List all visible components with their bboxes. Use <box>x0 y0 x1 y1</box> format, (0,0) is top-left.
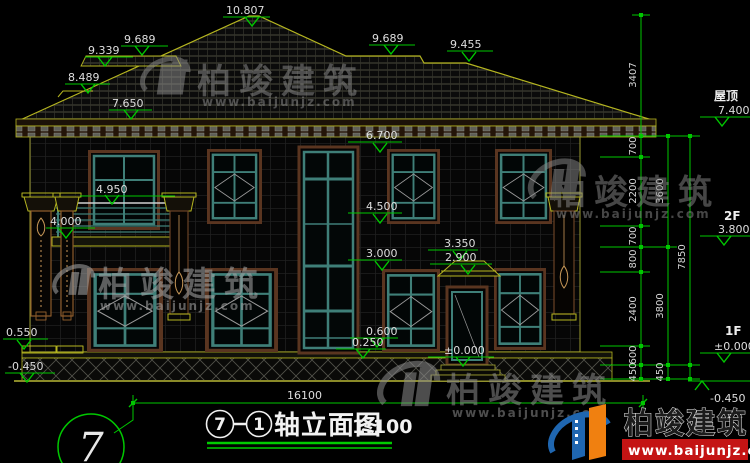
level-roof-right-panel: 屋顶 7.400 <box>700 89 750 126</box>
title-axis-end: 1 <box>253 415 265 435</box>
roof-level: 7.400 <box>718 104 750 117</box>
stair-window <box>299 147 358 353</box>
floor1-level: ±0.000 <box>714 340 750 353</box>
brand-badge: 柏竣建筑 www.baijunjz.com <box>551 404 750 460</box>
dim-700b: 700 <box>628 226 639 245</box>
brand-badge-name: 柏竣建筑 <box>624 406 748 440</box>
f1-window-d <box>495 270 544 349</box>
dim-7850: 7850 <box>677 244 688 269</box>
roof-label: 屋顶 <box>714 89 738 103</box>
level-text: 2.900 <box>445 251 477 264</box>
overall-width-dim: 16100 <box>287 389 322 402</box>
level-text: 6.700 <box>366 129 398 142</box>
dim-600: 600 <box>628 345 639 364</box>
cad-elevation-drawing: 10.807 9.689 9.339 8.489 7.650 9.689 9.4… <box>0 0 750 463</box>
level-ground-panel: -0.450 <box>688 381 750 405</box>
level-text: 7.650 <box>112 97 144 110</box>
level-roof-left-upper: 9.689 <box>121 33 168 55</box>
dim-450a: 450 <box>628 362 639 381</box>
level-text-ridge: 10.807 <box>226 4 265 17</box>
level-text: 4.950 <box>96 183 128 196</box>
title-scale: 1:100 <box>352 416 412 438</box>
ground-level: -0.450 <box>710 392 745 405</box>
watermark-brand: 柏竣建筑 <box>446 371 614 411</box>
watermark-url: www.baijunjz.com <box>202 95 357 109</box>
level-roof-right-upper: 9.689 <box>369 32 415 54</box>
watermark-right: 柏竣建筑 www.baijunjz.com <box>531 161 720 221</box>
dim-3800: 3800 <box>655 293 666 318</box>
level-text: 3.000 <box>366 247 398 260</box>
level-text: 9.689 <box>372 32 404 45</box>
level-text: 0.250 <box>352 336 384 349</box>
floor1-label: 1F <box>725 324 742 338</box>
title-axis-start: 7 <box>214 415 226 435</box>
level-text: 9.689 <box>124 33 156 46</box>
f2-window-d <box>497 150 551 222</box>
level-text: -0.450 <box>8 360 43 373</box>
level-text: 4.500 <box>366 200 398 213</box>
level-1f-panel: 1F ±0.000 <box>700 324 750 362</box>
level-roof-right-step: 9.455 <box>447 38 493 61</box>
drawing-canvas: 10.807 9.689 9.339 8.489 7.650 9.689 9.4… <box>0 0 750 463</box>
door-step-1 <box>441 365 495 370</box>
dim-450b: 450 <box>655 362 666 381</box>
dim-700a: 700 <box>628 136 639 155</box>
level-text: ±0.000 <box>444 344 485 357</box>
floor2-level: 3.800 <box>718 223 750 236</box>
level-text: 9.455 <box>450 38 482 51</box>
axis-bubble-number: 7 <box>78 425 104 463</box>
drawing-title: 7 1 轴立面图 1:100 <box>207 410 413 448</box>
level-text: 0.550 <box>6 326 38 339</box>
watermark-url: www.baijunjz.com <box>556 207 711 221</box>
axis-leader <box>114 403 133 433</box>
eave-cornice <box>16 119 656 137</box>
level-text: 4.000 <box>50 215 82 228</box>
dim-3407: 3407 <box>628 62 639 87</box>
brand-badge-url: www.baijunjz.com <box>628 443 750 459</box>
f2-window-b <box>208 150 260 222</box>
level-text: 9.339 <box>88 44 120 57</box>
level-text: 8.489 <box>68 71 100 84</box>
brand-logo-bar-orange <box>589 404 606 460</box>
dim-2400: 2400 <box>628 296 639 321</box>
watermark-url: www.baijunjz.com <box>100 299 255 313</box>
dim-800: 800 <box>628 249 639 268</box>
brand-logo-bar-blue <box>572 412 585 460</box>
axis-bubble: 7 <box>58 414 124 463</box>
level-text: 3.350 <box>444 237 476 250</box>
floor2-label: 2F <box>724 209 741 223</box>
